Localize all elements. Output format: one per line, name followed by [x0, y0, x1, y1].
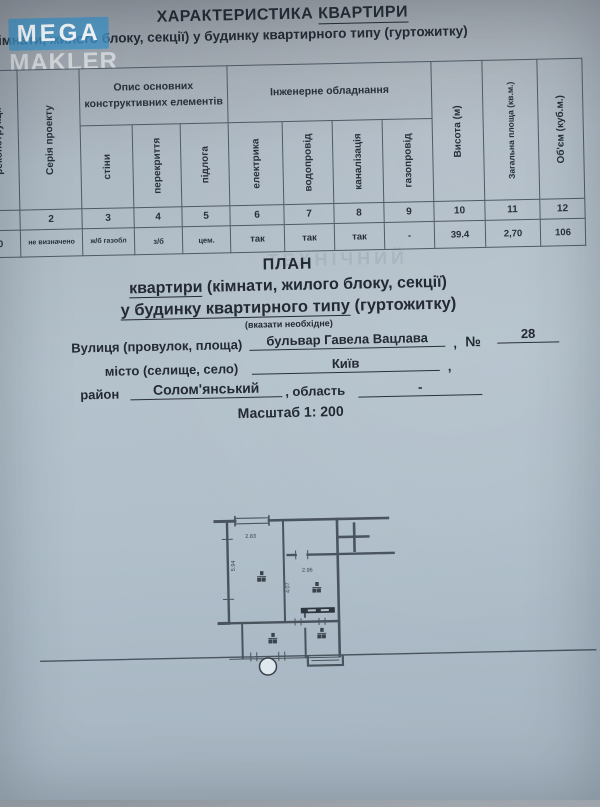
bathroom-left-wall — [305, 629, 306, 657]
kitchen-right-wall — [337, 519, 340, 656]
oblast-label: , область — [285, 383, 345, 399]
room-number-label — [257, 572, 266, 582]
dim-top: 2.83 — [245, 534, 256, 540]
oblast-value-line: - — [358, 378, 482, 398]
col-electricity-header: електрика — [228, 122, 284, 206]
floor-plan: 2.83 5.94 4.07 2.96 — [0, 433, 600, 697]
district-label: район — [80, 387, 119, 403]
col-total-area-header: Загальна площа (кв.м.) — [482, 59, 540, 200]
title-underlined: КВАРТИРИ — [318, 3, 408, 24]
col-walls-header: стіни — [80, 125, 134, 209]
watermark-mega: MEGA — [16, 19, 101, 49]
street-label: Вулиця (провулок, площа) — [71, 337, 242, 356]
col-volume-header: Об'єм (куб.м.) — [537, 58, 585, 199]
group-structural-elements: Опис основних конструктивних елементів — [79, 66, 228, 126]
col-floor-header: підлога — [180, 123, 230, 207]
house-number-line: 28 — [497, 325, 559, 343]
room-number-label — [317, 628, 326, 638]
col-water-header: водопровід — [282, 121, 334, 205]
vent-shaft-wall — [301, 607, 335, 613]
group-engineering-equipment: Інженерне обладнання — [227, 61, 432, 122]
street-comma: , — [453, 335, 457, 350]
room-number-label — [312, 582, 321, 592]
dim-right: 2.96 — [302, 568, 313, 574]
city-value-line: Київ — [252, 354, 440, 375]
room-number-label — [268, 633, 277, 643]
col-series-header: Серія проекту — [17, 69, 82, 210]
characteristics-table: реконструкції Серія проекту Опис основни… — [0, 58, 586, 259]
living-room-left-wall — [227, 521, 229, 623]
district-value-line: Солом'янський — [130, 379, 282, 400]
col-sewage-header: каналізація — [332, 120, 384, 204]
city-comma: , — [448, 359, 452, 374]
living-kitchen-partition — [283, 520, 285, 622]
col-ceilings-header: перекриття — [132, 124, 182, 208]
street-value-line: бульвар Гавела Вацлава — [249, 330, 445, 351]
col-gas-header: газопровід — [382, 118, 434, 202]
watermark-badge: MEGA — [8, 17, 109, 51]
column-marker — [259, 658, 276, 675]
dim-mid: 4.07 — [285, 582, 291, 593]
building-exterior-line — [41, 650, 596, 662]
col-height-header: Висота (м) — [431, 60, 485, 201]
title-main: ХАРАКТЕРИСТИКА — [156, 5, 313, 25]
city-label: місто (селище, село) — [105, 361, 239, 379]
document-page: ХАРАКТЕРИСТИКА КВАРТИРИ (кімнати, жилого… — [0, 0, 600, 807]
dim-left: 5.94 — [231, 560, 237, 571]
number-sign: № — [465, 333, 481, 349]
